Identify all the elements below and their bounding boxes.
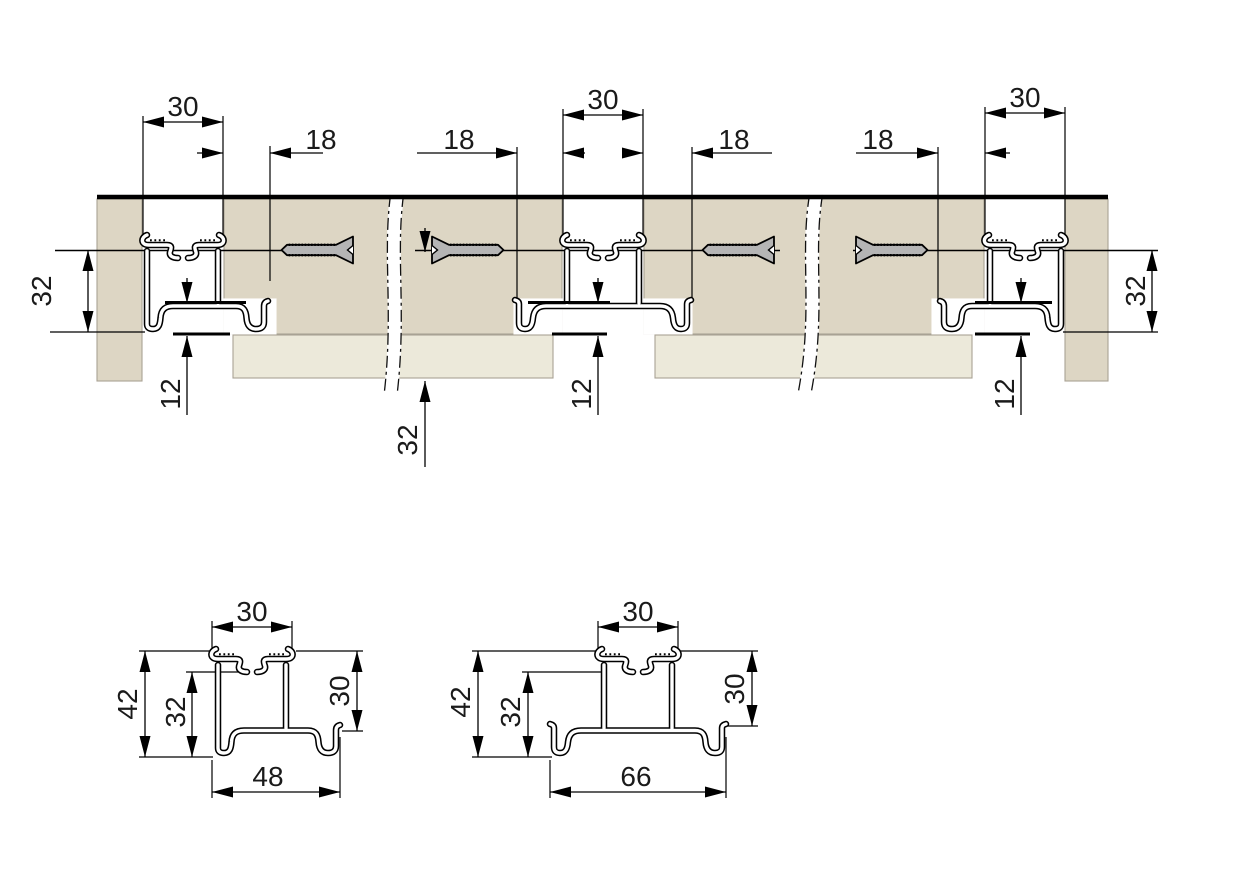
dimension-arrow: [692, 148, 713, 159]
dimension-arrow: [271, 622, 292, 633]
dimension-arrow: [917, 148, 938, 159]
dimension: 30: [598, 596, 678, 633]
dim-label: 18: [862, 124, 893, 155]
detail-profile-48: [218, 665, 340, 753]
dimension-arrow: [187, 672, 198, 693]
dimension: 30: [719, 651, 758, 726]
dimension: 30: [212, 596, 292, 633]
panel-break-left: [391, 195, 397, 391]
dimension-arrow: [622, 110, 643, 121]
dimension-arrow: [657, 622, 678, 633]
dimension-arrow: [985, 148, 1006, 159]
dimension-arrow: [352, 651, 363, 672]
dimension: 12: [566, 278, 604, 415]
dimension-arrow: [563, 110, 584, 121]
dimension-arrow: [140, 651, 151, 672]
dimension-arrow: [1147, 250, 1158, 271]
dimension-arrow: [1147, 311, 1158, 332]
dimension-arrow: [985, 108, 1006, 119]
dimension: 32: [1120, 250, 1158, 332]
dimension-arrow: [598, 622, 619, 633]
dimension-arrow: [420, 381, 431, 402]
drawing-page: 3030301818181832323212121230423230483042…: [0, 0, 1240, 882]
dimension-arrow: [523, 736, 534, 757]
dim-label: 12: [155, 378, 186, 409]
dim-label: 18: [443, 124, 474, 155]
dim-label: 12: [566, 378, 597, 409]
dimension-arrow: [747, 705, 758, 726]
dim-label: 18: [305, 124, 336, 155]
dimension-arrow: [550, 787, 571, 798]
dim-label: 42: [112, 688, 143, 719]
dim-label: 32: [26, 275, 57, 306]
dimension-arrow: [473, 651, 484, 672]
dimension-arrow: [202, 148, 223, 159]
dimension-arrow: [1016, 282, 1027, 303]
dimension: 12: [155, 278, 193, 415]
dimension-arrow: [473, 736, 484, 757]
dimension-arrow: [140, 736, 151, 757]
dim-label: 18: [718, 124, 749, 155]
dimension: 30: [143, 91, 223, 128]
dimension: 32: [26, 250, 94, 332]
upper-panel-left-strip: [97, 199, 142, 381]
dim-label: 30: [167, 91, 198, 122]
dimension-arrow: [747, 651, 758, 672]
dimension: 30: [324, 651, 363, 731]
dimension: 18: [856, 124, 1010, 159]
upper-panel-right-strip: [1065, 199, 1108, 381]
dimension-arrow: [270, 148, 291, 159]
dimension-arrow: [83, 250, 94, 271]
dimension-arrow: [352, 710, 363, 731]
dimensions: 3030301818181832323212121230423230483042…: [26, 82, 1158, 798]
dimension: 18: [622, 124, 772, 159]
dim-label: 30: [587, 84, 618, 115]
dim-label: 66: [620, 761, 651, 792]
installation-drawing: 3030301818181832323212121230423230483042…: [0, 0, 1240, 882]
dim-label: 48: [252, 761, 283, 792]
dim-label: 30: [622, 596, 653, 627]
dimension-arrow: [593, 336, 604, 357]
dimension: 30: [985, 82, 1065, 119]
dim-label: 30: [1009, 82, 1040, 113]
dim-label: 30: [719, 673, 750, 704]
dimension-arrow: [187, 736, 198, 757]
dimension-arrow: [212, 787, 233, 798]
dimension-arrow: [212, 622, 233, 633]
dimension: 32: [160, 672, 198, 757]
dimension-arrow: [563, 148, 584, 159]
dim-label: 32: [392, 424, 423, 455]
dimension-arrow: [319, 787, 340, 798]
dimension: 30: [563, 84, 643, 121]
dimension-arrow: [1044, 108, 1065, 119]
dimension-arrow: [1016, 336, 1027, 357]
dim-label: 32: [495, 696, 526, 727]
dimension: 48: [212, 761, 340, 798]
dimension-arrow: [182, 282, 193, 303]
dimension: 42: [112, 651, 151, 757]
dimension-arrow: [83, 311, 94, 332]
dim-label: 30: [324, 675, 355, 706]
dim-label: 42: [445, 686, 476, 717]
dimension-arrow: [523, 672, 534, 693]
dimension: 66: [550, 761, 726, 798]
dimension-arrow: [705, 787, 726, 798]
dim-label: 32: [160, 696, 191, 727]
dimension: 32: [495, 672, 534, 757]
dimension-arrow: [496, 148, 517, 159]
dim-label: 32: [1120, 275, 1151, 306]
detail-profile-48: [218, 665, 340, 753]
dimension-arrow: [182, 336, 193, 357]
dimension: 18: [417, 124, 585, 159]
detail-profile-66: [550, 724, 726, 753]
dimension: 42: [445, 651, 484, 757]
dimension-arrow: [143, 117, 164, 128]
dimension-arrow: [622, 148, 643, 159]
dimension: 18: [197, 124, 337, 159]
dim-label: 30: [236, 596, 267, 627]
dim-label: 12: [989, 378, 1020, 409]
dimension: 12: [989, 278, 1027, 415]
dimension-arrow: [593, 282, 604, 303]
dimension-arrow: [202, 117, 223, 128]
